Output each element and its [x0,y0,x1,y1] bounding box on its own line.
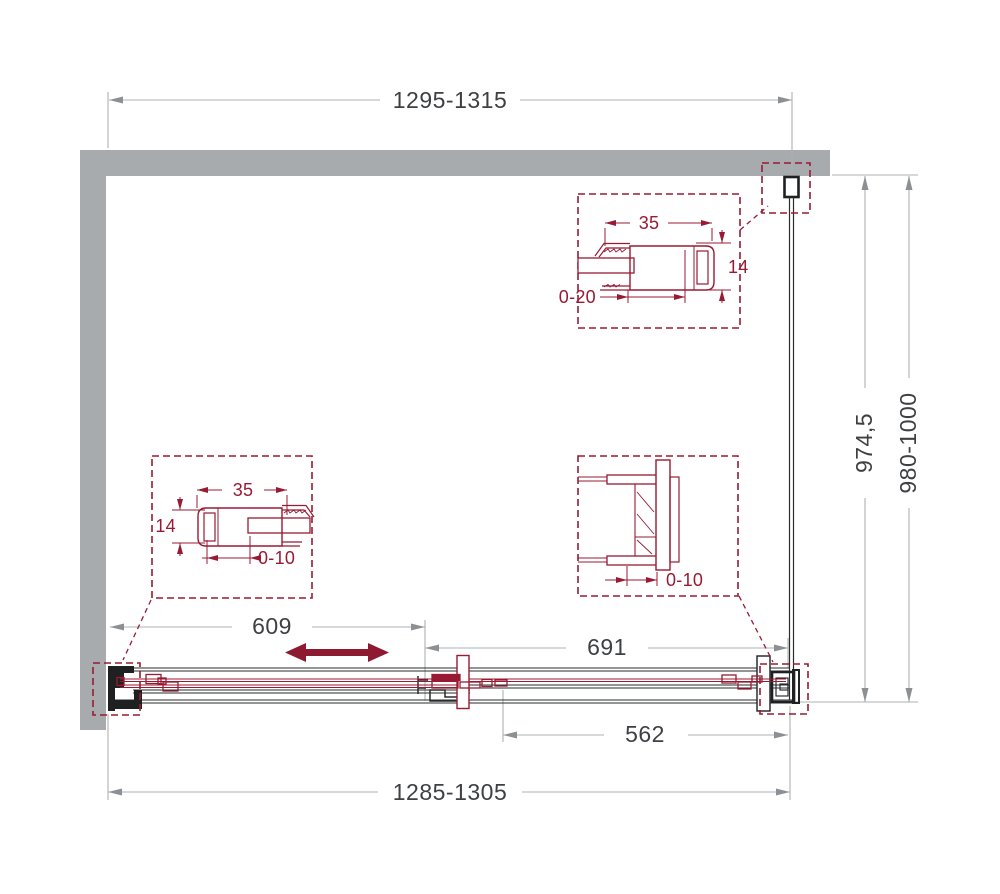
dim-top-width: 1295-1315 [393,87,508,113]
detail-bottom-width-label: 35 [233,480,254,500]
technical-drawing: 1295-1315 1285-1305 974,5 980-1000 609 6… [0,0,1000,894]
technical-drawing-page: 1295-1315 1285-1305 974,5 980-1000 609 6… [0,0,1000,894]
fixed-glass-panel [785,177,799,700]
left-wall [80,150,106,730]
detail-bracket-drawing [578,460,679,586]
detail-top-adjust-label: 0-20 [559,287,596,307]
detail-top-profile-drawing [578,223,731,303]
dim-height-outer: 980-1000 [895,392,921,493]
dim-door-right: 691 [587,634,627,660]
detail-leader-lines [123,206,773,662]
detail-top-width-label: 35 [639,213,660,233]
detail-bracket-adjust-label: 0-10 [666,570,703,590]
top-wall [80,150,830,176]
dim-opening: 562 [625,721,665,747]
dim-height-inner: 974,5 [851,413,877,473]
dim-bottom-width: 1285-1305 [393,779,508,805]
detail-bottom-adjust-label: 0-10 [258,548,295,568]
dimension-arrowheads [108,97,913,796]
dim-door-left: 609 [252,613,292,639]
detail-bottom-depth-label: 14 [155,516,176,536]
slide-direction-arrow [285,643,389,662]
track-left-wall-profile [108,666,459,711]
walls [80,150,830,730]
detail-top-depth-label: 14 [728,257,749,277]
